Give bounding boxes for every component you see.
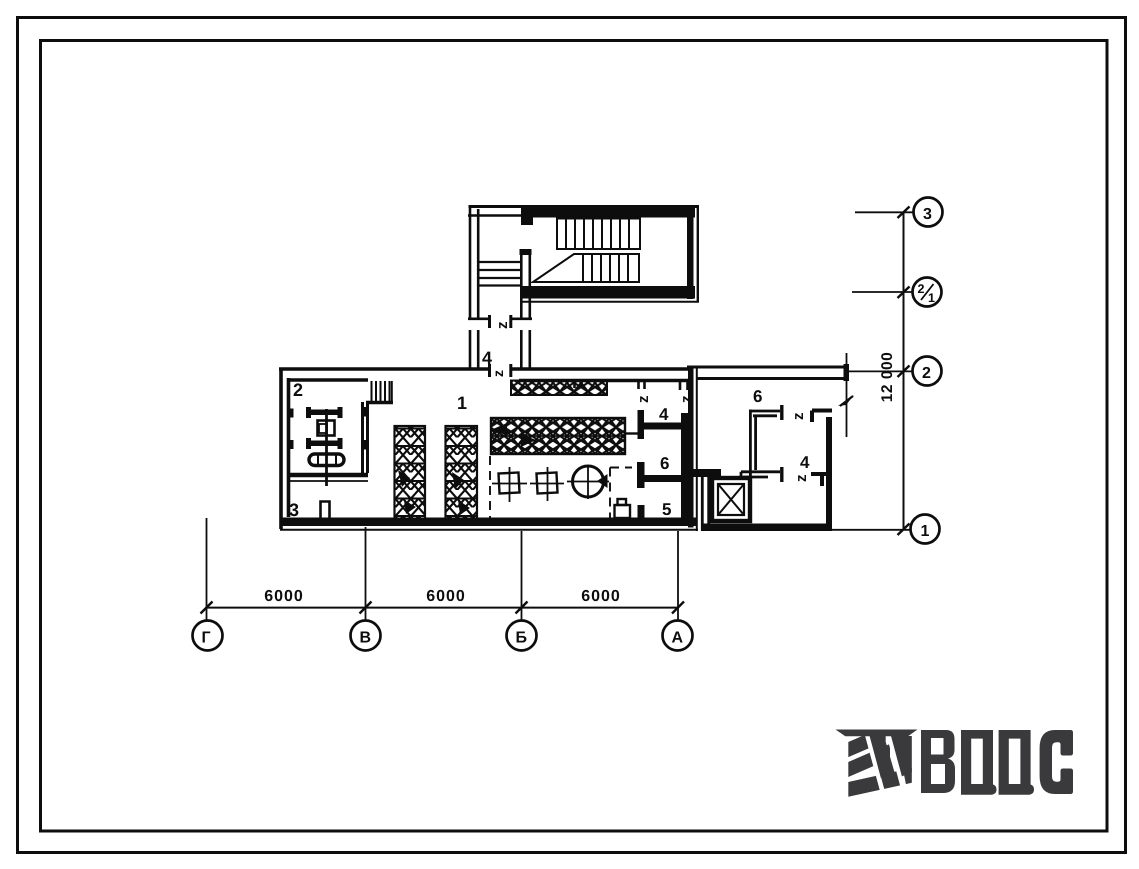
svg-text:1: 1 [921,523,930,540]
svg-text:3: 3 [923,206,932,223]
svg-text:2: 2 [293,380,303,400]
svg-text:z: z [678,396,695,404]
svg-text:6000: 6000 [581,588,621,605]
svg-text:z: z [635,396,652,404]
svg-text:z: z [490,370,506,377]
svg-text:2: 2 [922,365,931,382]
svg-text:12 000: 12 000 [879,352,896,402]
svg-text:5: 5 [662,500,671,519]
svg-text:Б: Б [516,630,528,647]
svg-text:4: 4 [800,453,810,472]
svg-text:4: 4 [659,405,669,424]
svg-text:1: 1 [928,291,935,305]
svg-text:1: 1 [457,393,467,413]
svg-text:Г: Г [202,630,211,647]
svg-text:3: 3 [289,500,299,520]
svg-text:В: В [360,630,372,647]
svg-text:z: z [494,322,511,330]
svg-text:6000: 6000 [426,588,466,605]
svg-text:2: 2 [918,282,925,296]
svg-text:А: А [672,630,684,647]
svg-text:z: z [793,475,810,483]
svg-text:z: z [790,413,807,421]
svg-text:6000: 6000 [264,588,304,605]
svg-text:6: 6 [660,454,669,473]
svg-text:6: 6 [753,387,762,406]
